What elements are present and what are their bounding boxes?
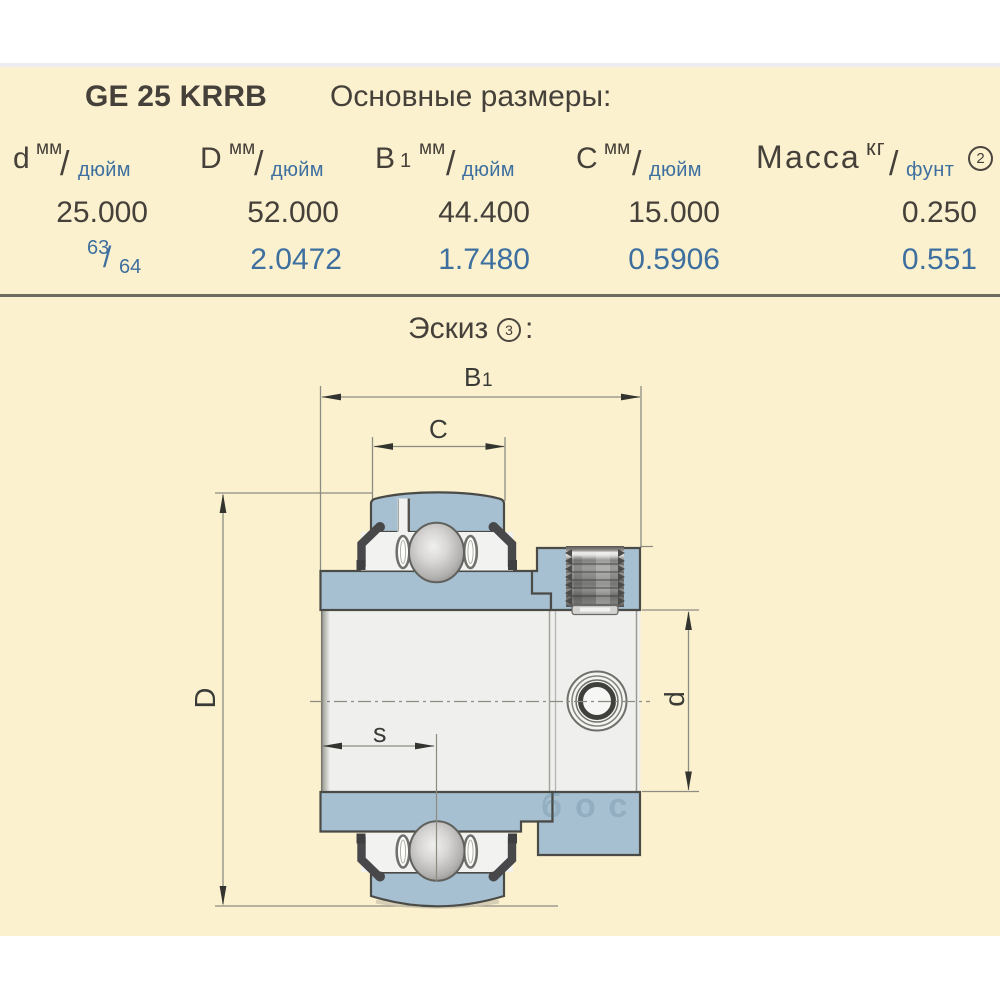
svg-text:C: C [429,414,448,444]
svg-text:1: 1 [482,370,493,391]
svg-text:s: s [373,718,387,748]
svg-text:B: B [464,362,481,392]
svg-text:D: D [190,688,222,709]
svg-text:бос: бос [541,787,640,825]
svg-text:d: d [659,691,690,707]
